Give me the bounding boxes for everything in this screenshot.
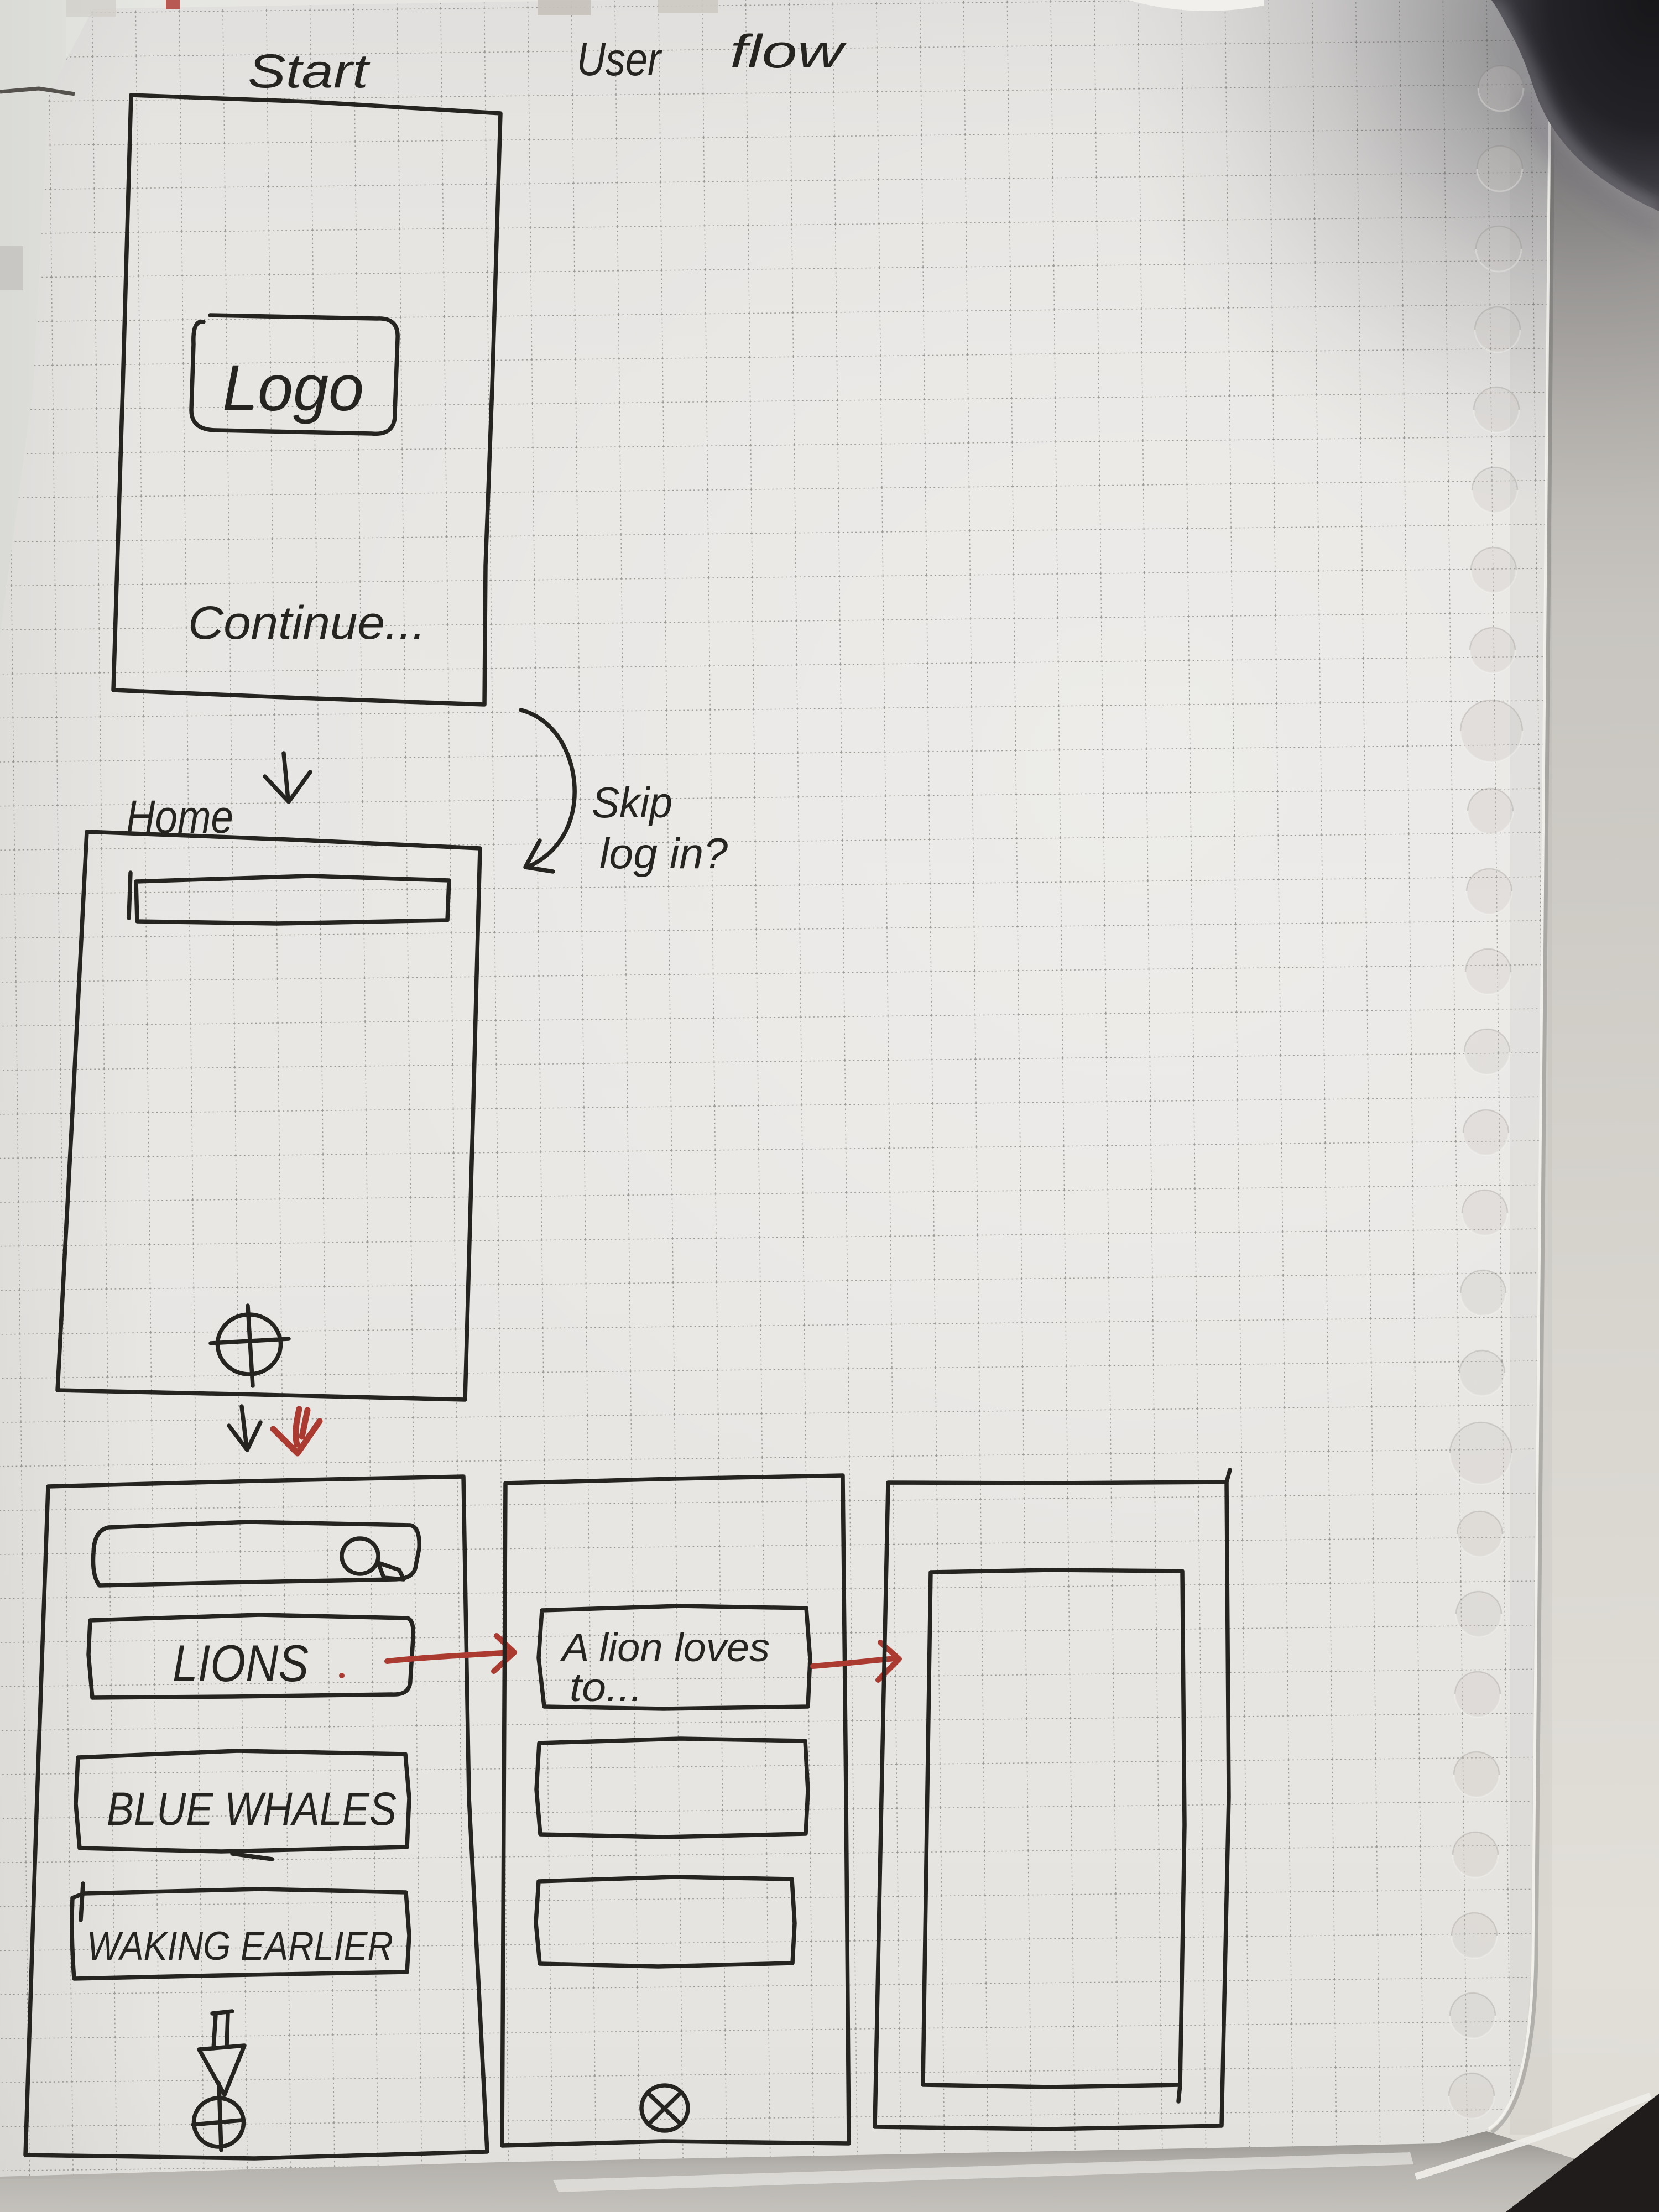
svg-text:User: User bbox=[577, 33, 662, 85]
svg-text:flow: flow bbox=[730, 25, 847, 77]
svg-text:BLUE WHALES: BLUE WHALES bbox=[107, 1783, 397, 1835]
svg-text:Start: Start bbox=[248, 45, 371, 98]
svg-text:LIONS: LIONS bbox=[173, 1634, 309, 1692]
svg-text:Skip: Skip bbox=[592, 778, 672, 827]
svg-text:to...: to... bbox=[570, 1666, 643, 1710]
svg-text:WAKING EARLIER: WAKING EARLIER bbox=[87, 1924, 393, 1969]
svg-text:Logo: Logo bbox=[222, 352, 364, 425]
svg-text:Continue...: Continue... bbox=[188, 597, 426, 649]
svg-text:log in?: log in? bbox=[599, 829, 728, 878]
svg-text:A lion loves: A lion loves bbox=[560, 1626, 770, 1670]
